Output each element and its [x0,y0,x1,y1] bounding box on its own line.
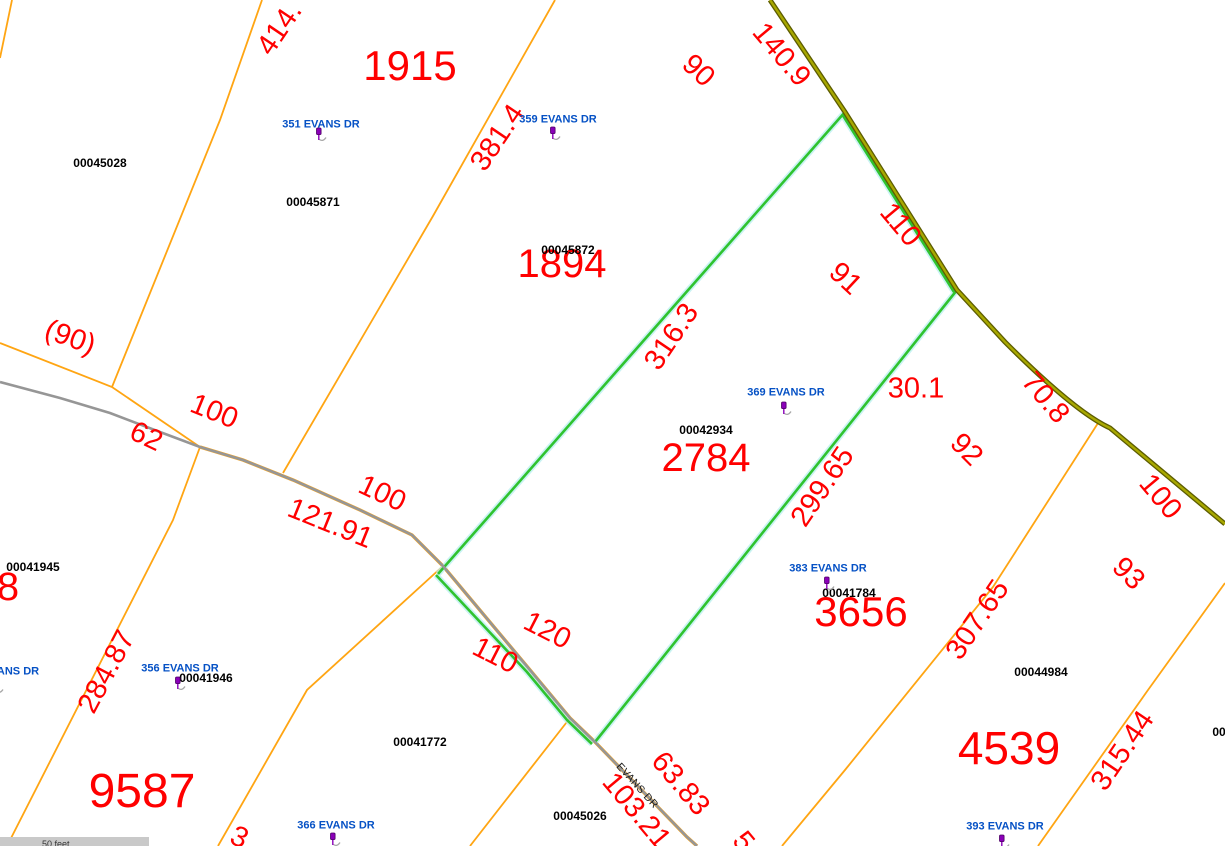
address-label: 366 EVANS DR [297,821,374,832]
labels-layer: 414.381.4140.99011091316.330.1299.659270… [0,0,1225,846]
parcel-id-label: 00045026 [553,810,606,822]
parcel-id-label: 00044984 [1014,666,1067,678]
dimension-label: 62 [125,417,166,457]
address-pin-icon[interactable] [170,676,186,692]
dimension-label: 381.4 [466,100,531,176]
address-pin-icon[interactable] [545,126,561,142]
dimension-label: (90) [41,316,99,361]
parcel-id-label: 00041945 [6,561,59,573]
dimension-label: 5 [727,826,760,846]
address-label: 393 EVANS DR [966,822,1043,833]
parcel-id-label: 00 [1212,726,1225,738]
dimension-label: 100 [354,471,410,518]
lot-number-label: 4539 [958,725,1060,771]
address-label: ANS DR [0,667,39,678]
dimension-label: 30.1 [888,375,944,404]
dimension-label: 93 [1106,552,1149,595]
dimension-label: 284.87 [73,626,140,718]
address-pin-icon[interactable] [776,401,792,417]
lot-number-label: 9587 [89,768,196,816]
lot-number-label: 2784 [662,438,751,478]
parcel-id-label: 00041772 [393,736,446,748]
lot-number-label: 1915 [363,45,456,87]
dimension-label: 307.65 [941,575,1015,665]
address-pin-icon[interactable] [0,679,4,695]
dimension-label: 299.65 [786,442,860,532]
address-pin-icon[interactable] [819,576,835,592]
dimension-label: 140.9 [747,18,816,92]
dimension-label: 414. [252,0,308,61]
scale-bar: 50 feet [0,837,149,846]
dimension-label: 92 [944,428,987,471]
dimension-label: 100 [186,389,242,434]
dimension-label: 315.44 [1086,706,1160,796]
dimension-label: 120 [519,607,575,655]
dimension-label: 3 [226,821,253,846]
address-label: 359 EVANS DR [519,115,596,126]
parcel-id-label: 00045871 [286,196,339,208]
address-pin-icon[interactable] [311,127,327,143]
dimension-label: 91 [823,257,866,300]
map-canvas[interactable]: 414.381.4140.99011091316.330.1299.659270… [0,0,1225,846]
dimension-label: 100 [1133,469,1186,525]
parcel-id-label: 00042934 [679,424,732,436]
dimension-label: 110 [874,198,926,252]
parcel-id-label: 00045028 [73,157,126,169]
address-label: 356 EVANS DR [141,664,218,675]
parcel-id-label: 00045872 [541,244,594,256]
dimension-label: 70.8 [1016,367,1075,429]
address-label: 383 EVANS DR [789,564,866,575]
dimension-label: 121.91 [283,494,376,554]
dimension-label: 90 [676,49,719,92]
dimension-label: 316.3 [640,299,705,375]
address-pin-icon[interactable] [994,834,1010,846]
scale-bar-label: 50 feet [42,839,70,846]
address-label: 369 EVANS DR [747,388,824,399]
address-pin-icon[interactable] [325,832,341,846]
dimension-label: 110 [468,633,522,680]
